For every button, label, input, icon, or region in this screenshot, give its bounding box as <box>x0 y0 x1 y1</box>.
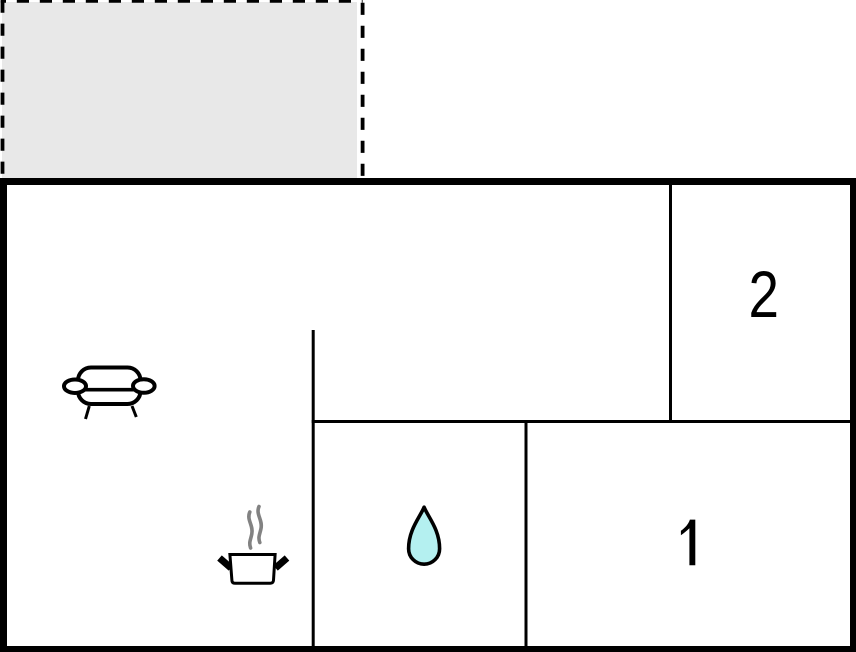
svg-text:2: 2 <box>748 257 778 331</box>
